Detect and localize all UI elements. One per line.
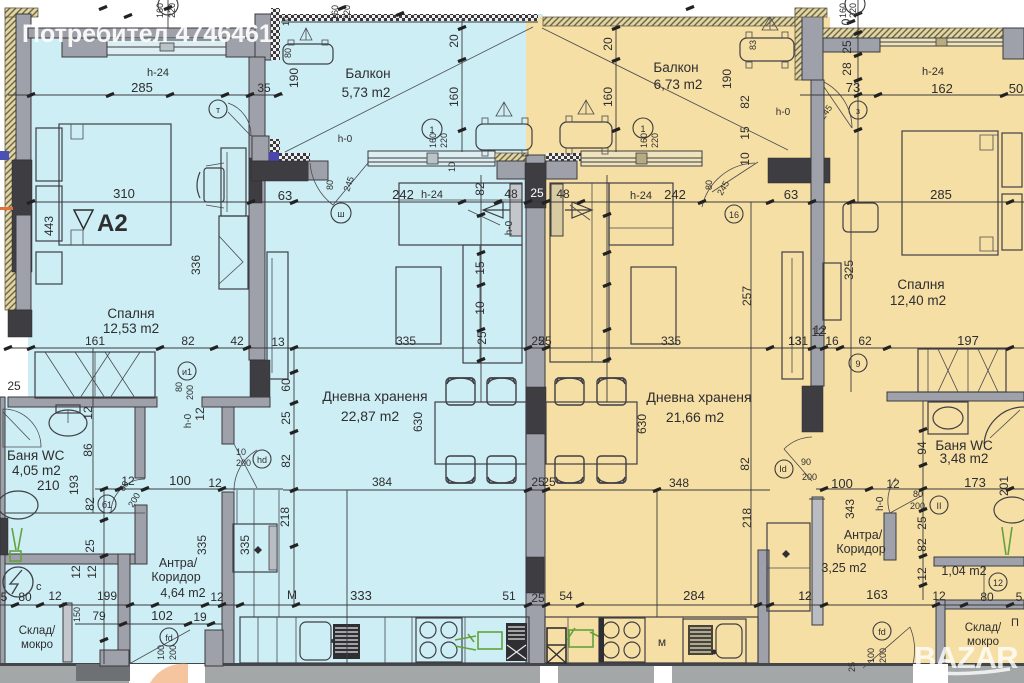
svg-text:630: 630 [635, 414, 649, 434]
svg-text:10: 10 [738, 152, 752, 166]
svg-text:335: 335 [238, 535, 252, 555]
svg-text:48: 48 [556, 187, 570, 201]
svg-text:80: 80 [913, 489, 923, 499]
svg-text:Спалня: Спалня [107, 306, 154, 321]
svg-text:10: 10 [473, 301, 487, 315]
svg-text:102: 102 [151, 608, 173, 623]
svg-text:12: 12 [932, 589, 946, 603]
svg-text:Балкон: Балкон [653, 60, 698, 75]
svg-text:12: 12 [993, 578, 1003, 588]
svg-text:200: 200 [236, 458, 251, 468]
svg-text:12: 12 [85, 565, 99, 579]
svg-text:218: 218 [740, 508, 754, 528]
svg-text:220: 220 [342, 5, 352, 20]
svg-text:335: 335 [661, 334, 681, 348]
svg-text:200: 200 [185, 385, 195, 400]
svg-text:Коридор: Коридор [836, 542, 885, 556]
svg-text:12: 12 [81, 406, 95, 420]
svg-text:200: 200 [878, 648, 888, 663]
svg-text:h-24: h-24 [147, 67, 169, 79]
svg-text:90: 90 [801, 457, 811, 467]
svg-text:335: 335 [396, 334, 416, 348]
svg-text:200: 200 [168, 645, 178, 660]
svg-text:h-0: h-0 [875, 496, 886, 511]
svg-text:fd: fd [878, 627, 886, 637]
svg-text:50: 50 [1009, 81, 1023, 96]
svg-text:Антра/: Антра/ [844, 528, 883, 542]
svg-text:348: 348 [669, 476, 689, 490]
svg-text:h-24: h-24 [630, 190, 652, 202]
svg-text:25: 25 [915, 516, 929, 530]
svg-text:3,48 m2: 3,48 m2 [940, 451, 989, 466]
svg-text:82: 82 [915, 538, 929, 552]
svg-text:220: 220 [167, 3, 177, 18]
svg-text:Спалня: Спалня [897, 277, 944, 292]
svg-text:60: 60 [279, 378, 293, 392]
svg-text:384: 384 [372, 475, 392, 489]
svg-text:fd: fd [165, 633, 173, 643]
svg-text:80: 80 [174, 382, 184, 392]
svg-text:443: 443 [42, 216, 56, 236]
svg-text:28: 28 [840, 62, 854, 76]
svg-text:48: 48 [504, 187, 518, 201]
svg-text:15: 15 [473, 261, 487, 275]
svg-text:П: П [1011, 617, 1019, 629]
svg-text:h-24: h-24 [421, 189, 443, 201]
svg-text:285: 285 [131, 80, 153, 95]
svg-text:284: 284 [683, 588, 705, 603]
svg-text:163: 163 [866, 587, 888, 602]
svg-text:12: 12 [69, 565, 83, 579]
svg-text:М: М [287, 588, 297, 602]
svg-text:5,73 m2: 5,73 m2 [342, 85, 391, 100]
svg-text:325: 325 [842, 260, 856, 280]
svg-text:1: 1 [640, 124, 645, 134]
svg-text:63: 63 [278, 188, 292, 203]
svg-text:131: 131 [788, 334, 808, 348]
svg-text:h-0: h-0 [776, 107, 791, 118]
svg-text:12: 12 [811, 325, 825, 339]
svg-text:100: 100 [156, 645, 166, 660]
svg-text:160: 160 [428, 133, 438, 148]
svg-text:12,40 m2: 12,40 m2 [890, 293, 946, 308]
svg-text:80: 80 [980, 590, 994, 604]
svg-text:100: 100 [169, 473, 191, 488]
svg-text:82: 82 [279, 454, 293, 468]
svg-text:80: 80 [325, 180, 335, 190]
svg-text:б1: б1 [102, 500, 112, 510]
svg-text:630: 630 [411, 412, 425, 432]
svg-text:51: 51 [502, 589, 516, 603]
svg-text:218: 218 [278, 507, 292, 527]
svg-text:25: 25 [7, 379, 21, 393]
svg-text:Антра/: Антра/ [159, 556, 198, 570]
svg-text:62: 62 [858, 334, 872, 348]
svg-text:12,53 m2: 12,53 m2 [103, 321, 159, 336]
svg-text:4,05 m2: 4,05 m2 [12, 463, 61, 478]
svg-text:10: 10 [447, 162, 457, 172]
svg-text:25: 25 [531, 591, 545, 605]
svg-text:73: 73 [846, 80, 860, 95]
svg-text:285: 285 [930, 187, 952, 202]
svg-text:310: 310 [113, 186, 135, 201]
svg-text:42: 42 [230, 334, 244, 348]
svg-text:82: 82 [738, 95, 752, 109]
svg-text:160: 160 [447, 87, 461, 107]
svg-text:12: 12 [915, 567, 929, 581]
svg-text:100: 100 [831, 476, 853, 491]
svg-text:25: 25 [840, 40, 854, 54]
svg-text:242: 242 [392, 187, 414, 202]
svg-text:63: 63 [784, 187, 798, 202]
svg-text:Потребител 4746461: Потребител 4746461 [22, 20, 273, 48]
svg-text:82: 82 [738, 457, 752, 471]
svg-text:1: 1 [429, 125, 434, 135]
svg-text:257: 257 [740, 286, 754, 306]
svg-text:12: 12 [886, 477, 900, 491]
svg-text:10: 10 [236, 447, 246, 457]
svg-text:Коридор: Коридор [151, 570, 200, 584]
svg-text:25: 25 [542, 475, 556, 489]
svg-text:12: 12 [48, 589, 62, 603]
svg-text:82: 82 [473, 182, 487, 196]
svg-text:20: 20 [601, 37, 615, 51]
svg-text:5: 5 [1016, 590, 1023, 604]
svg-text:10: 10 [281, 16, 291, 26]
svg-text:25: 25 [279, 411, 293, 425]
svg-text:9: 9 [855, 359, 860, 369]
svg-text:25: 25 [530, 186, 544, 200]
svg-text:210: 210 [37, 478, 60, 493]
svg-text:12: 12 [210, 590, 224, 604]
svg-text:86: 86 [81, 443, 95, 457]
svg-text:160: 160 [601, 87, 615, 107]
svg-text:335: 335 [195, 535, 209, 555]
svg-text:Баня WC: Баня WC [7, 448, 65, 463]
svg-text:h-0: h-0 [338, 134, 353, 145]
svg-text:h-24: h-24 [922, 66, 944, 78]
svg-text:190: 190 [720, 69, 734, 89]
svg-text:21,66 m2: 21,66 m2 [666, 409, 725, 425]
svg-text:190: 190 [287, 68, 301, 88]
svg-text:242: 242 [664, 187, 686, 202]
svg-text:25: 25 [847, 662, 857, 672]
svg-text:333: 333 [350, 588, 372, 603]
svg-text:12: 12 [193, 407, 207, 421]
svg-text:199: 199 [97, 589, 117, 603]
svg-text:79: 79 [92, 609, 106, 623]
svg-text:160: 160 [330, 5, 340, 20]
svg-text:200: 200 [910, 501, 925, 511]
svg-text:1,04 m2: 1,04 m2 [941, 564, 986, 578]
svg-text:25: 25 [475, 331, 489, 345]
svg-text:220: 220 [650, 133, 660, 148]
svg-text:100: 100 [866, 648, 876, 663]
svg-text:hd: hd [257, 455, 267, 465]
svg-text:12: 12 [798, 589, 812, 603]
svg-text:197: 197 [957, 333, 979, 348]
svg-text:и1: и1 [182, 367, 192, 377]
svg-text:161: 161 [85, 334, 105, 348]
svg-text:Id: Id [779, 464, 787, 474]
svg-text:19: 19 [193, 610, 207, 624]
svg-text:т: т [216, 105, 220, 115]
svg-text:35: 35 [257, 81, 271, 95]
svg-text:80: 80 [283, 48, 293, 58]
svg-text:мокро: мокро [21, 639, 53, 651]
svg-text:343: 343 [843, 499, 857, 519]
svg-text:II: II [936, 501, 941, 511]
svg-text:Балкон: Балкон [345, 66, 390, 81]
svg-text:160: 160 [838, 3, 848, 18]
svg-text:150: 150 [72, 607, 82, 622]
svg-text:80: 80 [704, 180, 714, 190]
svg-text:3,25 m2: 3,25 m2 [821, 561, 866, 575]
svg-text:0: 0 [839, 18, 853, 25]
svg-text:160: 160 [639, 133, 649, 148]
svg-text:Склад/: Склад/ [965, 622, 1002, 634]
svg-text:201: 201 [997, 476, 1011, 496]
svg-text:Дневна храненя: Дневна храненя [322, 388, 427, 404]
svg-text:5: 5 [1, 590, 8, 604]
svg-text:22,87 m2: 22,87 m2 [341, 408, 400, 424]
svg-text:80: 80 [18, 590, 32, 604]
svg-text:82: 82 [181, 334, 195, 348]
svg-text:54: 54 [559, 589, 573, 603]
svg-text:220: 220 [848, 3, 858, 18]
svg-text:200: 200 [802, 472, 817, 482]
svg-text:4,64 m2: 4,64 m2 [160, 586, 205, 600]
svg-text:ш: ш [337, 209, 344, 219]
svg-text:82: 82 [83, 497, 97, 511]
svg-text:с: с [36, 581, 42, 593]
svg-text:12: 12 [208, 476, 222, 490]
svg-text:25: 25 [83, 539, 97, 553]
svg-text:13: 13 [271, 335, 285, 349]
svg-text:м: м [658, 635, 666, 649]
svg-text:h-0: h-0 [504, 220, 515, 235]
svg-text:83: 83 [748, 40, 758, 50]
svg-text:Дневна храненя: Дневна храненя [646, 389, 751, 405]
svg-text:6,73 m2: 6,73 m2 [654, 77, 703, 92]
svg-text:A2: A2 [97, 210, 128, 237]
svg-text:20: 20 [447, 34, 461, 48]
svg-text:16: 16 [825, 334, 839, 348]
svg-text:16: 16 [729, 210, 739, 220]
svg-text:162: 162 [931, 81, 953, 96]
svg-text:336: 336 [189, 255, 203, 275]
svg-text:Склад/: Склад/ [19, 625, 56, 637]
svg-text:94: 94 [915, 441, 929, 455]
svg-text:15: 15 [738, 126, 752, 140]
svg-text:193: 193 [67, 475, 81, 495]
svg-text:25: 25 [538, 334, 552, 348]
svg-text:173: 173 [964, 475, 986, 490]
